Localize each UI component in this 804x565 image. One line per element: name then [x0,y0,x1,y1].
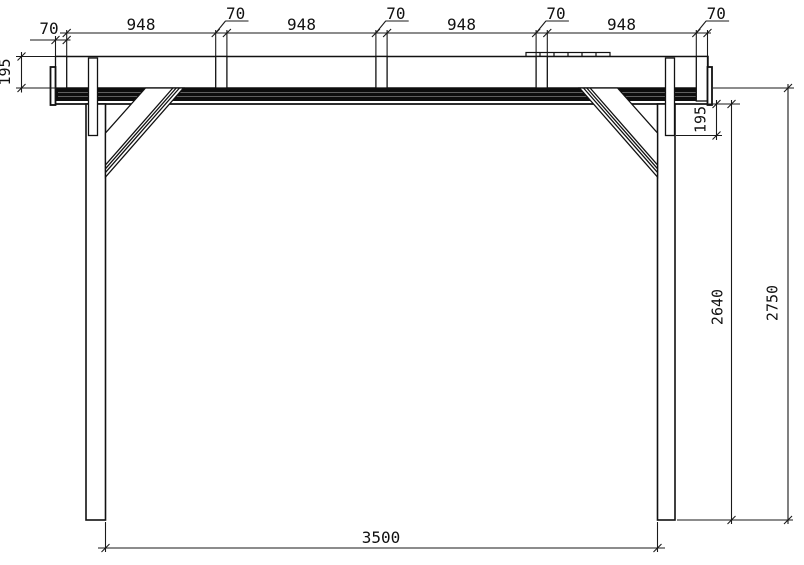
dim-70-3: 70 [386,4,405,23]
purlin-5 [696,57,707,102]
drawing-canvas: 70 948 70 948 70 948 70 948 70 195 195 2… [0,0,804,565]
elevation-drawing: 70 948 70 948 70 948 70 948 70 195 195 2… [0,0,804,565]
dim-70-4: 70 [546,4,565,23]
dim-2750: 2750 [764,285,782,321]
purlin-2 [216,57,227,89]
dim-948-4: 948 [607,15,636,34]
left-post-tenon [89,58,98,136]
right-post [658,104,676,520]
right-post-tenon [666,58,675,136]
left-brace [106,88,184,177]
dim-195-right: 195 [692,106,710,133]
dim-948-2: 948 [287,15,316,34]
right-fascia-board [708,67,713,105]
left-post [86,104,106,520]
right-brace [580,88,658,177]
dim-3500: 3500 [362,528,401,547]
purlin-3 [376,57,387,89]
dim-70-1: 70 [39,19,58,38]
dim-70-5: 70 [707,4,726,23]
purlin-4 [536,57,547,89]
dim-70-2: 70 [226,4,245,23]
left-fascia-board [51,67,56,105]
dim-2640: 2640 [709,289,727,325]
dim-948-3: 948 [447,15,476,34]
dim-948-1: 948 [127,15,156,34]
dim-195-left: 195 [0,58,14,85]
purlin-1 [56,57,67,89]
